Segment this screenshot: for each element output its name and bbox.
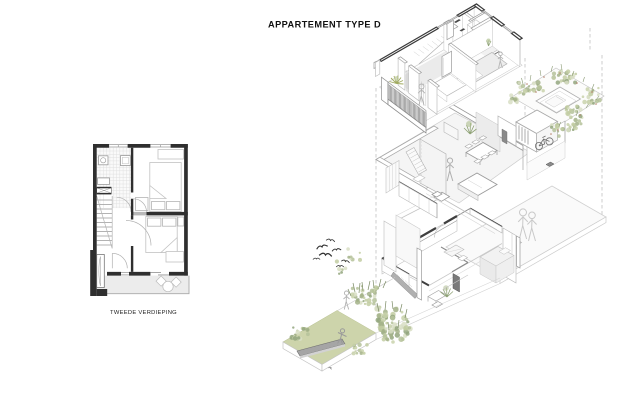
svg-text:APPARTEMENT TYPE D: APPARTEMENT TYPE D	[268, 20, 381, 30]
svg-text:TWEEDE VERDIEPING: TWEEDE VERDIEPING	[110, 310, 177, 316]
